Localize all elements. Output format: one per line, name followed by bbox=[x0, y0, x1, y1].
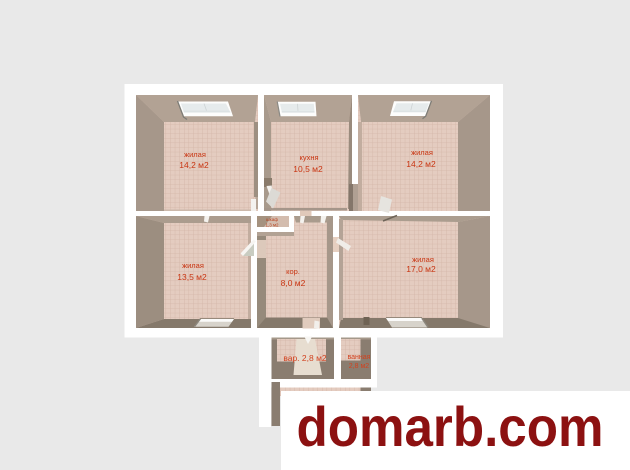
svg-text:жилая: жилая bbox=[182, 261, 204, 270]
svg-text:кухня: кухня bbox=[299, 153, 318, 162]
svg-text:вар. 2,8 м2: вар. 2,8 м2 bbox=[283, 353, 327, 363]
svg-text:8,0 м2: 8,0 м2 bbox=[281, 278, 306, 288]
svg-text:кор.: кор. bbox=[286, 267, 300, 276]
svg-text:13,5 м2: 13,5 м2 bbox=[177, 272, 207, 282]
svg-text:14,2 м2: 14,2 м2 bbox=[406, 159, 436, 169]
svg-text:domarb.com: domarb.com bbox=[297, 395, 604, 458]
svg-text:ванная: ванная bbox=[348, 354, 371, 361]
svg-text:2,8 м2: 2,8 м2 bbox=[349, 363, 369, 370]
svg-text:жилая: жилая bbox=[411, 148, 433, 157]
svg-text:шкаф: шкаф bbox=[266, 217, 278, 222]
svg-text:1,3 м2: 1,3 м2 bbox=[265, 223, 279, 228]
svg-text:жилая: жилая bbox=[412, 255, 434, 264]
svg-text:жилая: жилая bbox=[184, 150, 206, 159]
svg-text:14,2 м2: 14,2 м2 bbox=[179, 160, 209, 170]
svg-text:10,5 м2: 10,5 м2 bbox=[293, 164, 323, 174]
svg-text:17,0 м2: 17,0 м2 bbox=[406, 264, 436, 274]
